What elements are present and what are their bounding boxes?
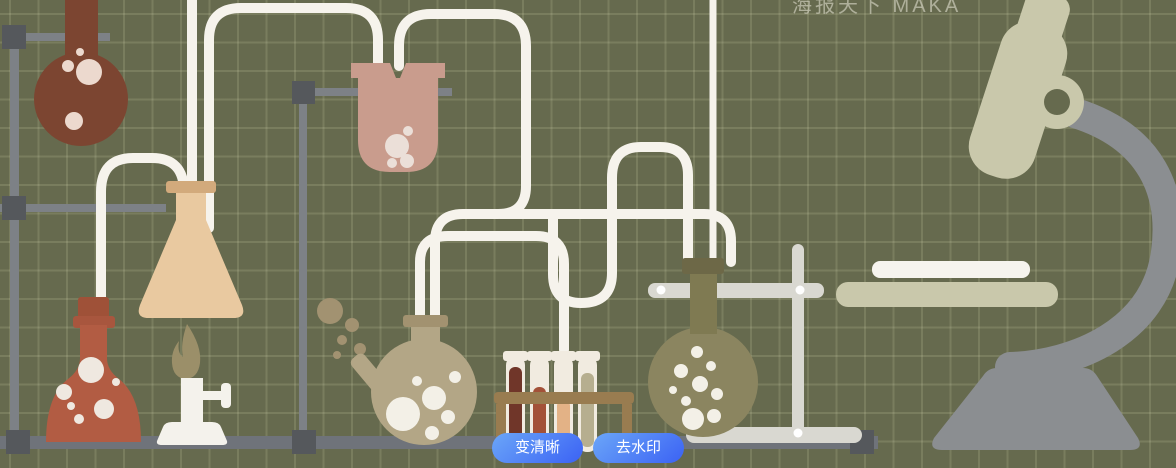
round-flask-dark-brown <box>34 0 128 146</box>
action-button-row: 变清晰 去水印 <box>0 433 1176 463</box>
hanging-beaker <box>351 63 445 172</box>
enhance-button[interactable]: 变清晰 <box>492 433 583 463</box>
watermark-text: 海报天下 MAKA <box>792 0 961 18</box>
remove-watermark-button[interactable]: 去水印 <box>593 433 684 463</box>
microscope <box>836 0 1168 450</box>
alcohol-burner <box>157 324 231 445</box>
microscope-stage <box>836 282 1058 307</box>
retort-flask <box>317 298 477 445</box>
screenshot-root: 海报天下 MAKA 变清晰 去水印 <box>0 0 1176 468</box>
chemistry-lab-illustration <box>0 0 1176 468</box>
round-flask-red <box>46 297 141 442</box>
microscope-slide <box>872 261 1030 278</box>
erlenmeyer-flask <box>139 181 244 318</box>
flame-icon <box>172 324 200 379</box>
